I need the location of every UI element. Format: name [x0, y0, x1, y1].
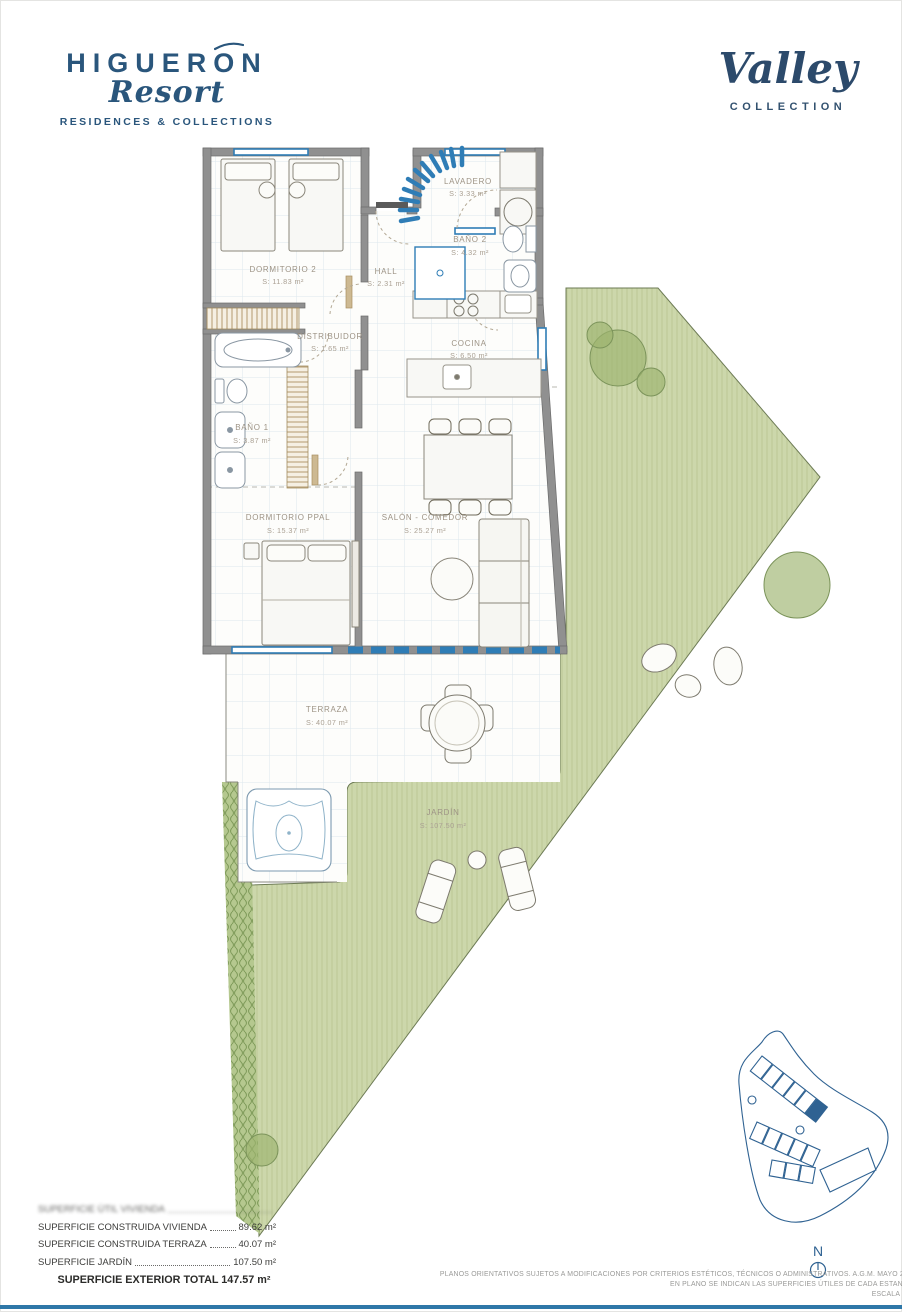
- floor-plan: LAVADERO S: 3.33 m² BAÑO 2 S: 4.32 m² HA…: [0, 0, 902, 1312]
- room-label-dormitorio-ppal: DORMITORIO PPAL: [246, 513, 330, 522]
- bottom-accent-band: [0, 1305, 902, 1309]
- footnotes: PLANOS ORIENTATIVOS SUJETOS A MODIFICACI…: [288, 1270, 902, 1300]
- dining-set: [424, 419, 512, 515]
- svg-text:S: 15.37 m²: S: 15.37 m²: [267, 526, 309, 535]
- surface-row: SUPERFICIE CONSTRUIDA VIVIENDA 89.62 m²: [38, 1222, 276, 1233]
- room-label-lavadero: LAVADERO: [444, 177, 492, 186]
- room-label-salon-comedor: SALÓN - COMEDOR: [382, 513, 469, 522]
- coffee-table: [431, 558, 473, 600]
- site-plan-minimap: [739, 1031, 888, 1222]
- svg-text:S: 107.50 m²: S: 107.50 m²: [420, 821, 467, 830]
- surface-total: SUPERFICIE EXTERIOR TOTAL 147.57 m²: [38, 1274, 276, 1286]
- room-label-distribuidor: DISTRIBUIDOR: [297, 332, 363, 341]
- room-label-bano1: BAÑO 1: [235, 423, 269, 432]
- svg-text:S: 11.83 m²: S: 11.83 m²: [262, 277, 304, 286]
- surface-row: SUPERFICIE CONSTRUIDA TERRAZA 40.07 m²: [38, 1239, 276, 1250]
- footnote-line: ESCALA 1:: [288, 1290, 902, 1300]
- svg-text:S: 1.65 m²: S: 1.65 m²: [311, 344, 349, 353]
- svg-text:S: 40.07 m²: S: 40.07 m²: [306, 718, 348, 727]
- svg-text:S: 4.32 m²: S: 4.32 m²: [451, 248, 489, 257]
- room-label-dormitorio2: DORMITORIO 2: [250, 265, 317, 274]
- svg-text:S: 2.31 m²: S: 2.31 m²: [367, 279, 405, 288]
- jacuzzi: [247, 789, 331, 871]
- footnote-line: EN PLANO SE INDICAN LAS SUPERFICIES ÚTIL…: [288, 1280, 902, 1290]
- closet-column: [287, 366, 308, 488]
- room-label-hall: HALL: [375, 267, 398, 276]
- svg-text:S: 25.27 m²: S: 25.27 m²: [404, 526, 446, 535]
- wardrobe-dormitorio2: [207, 308, 299, 329]
- svg-text:N: N: [813, 1243, 823, 1259]
- surface-table: SUPERFICIE ÚTIL VIVIENDA SUPERFICIE CONS…: [38, 1204, 276, 1286]
- surface-row: SUPERFICIE ÚTIL VIVIENDA: [38, 1204, 276, 1215]
- room-label-cocina: COCINA: [451, 339, 486, 348]
- svg-text:S: 3.33 m²: S: 3.33 m²: [449, 189, 487, 198]
- room-label-terraza: TERRAZA: [306, 705, 348, 714]
- footnote-line: PLANOS ORIENTATIVOS SUJETOS A MODIFICACI…: [288, 1270, 902, 1280]
- svg-text:S: 6.50 m²: S: 6.50 m²: [450, 351, 488, 360]
- svg-text:S: 3.87 m²: S: 3.87 m²: [233, 436, 271, 445]
- surface-row: SUPERFICIE JARDÍN 107.50 m²: [38, 1257, 276, 1268]
- room-label-jardin: JARDÍN: [426, 808, 459, 817]
- room-label-bano2: BAÑO 2: [453, 235, 487, 244]
